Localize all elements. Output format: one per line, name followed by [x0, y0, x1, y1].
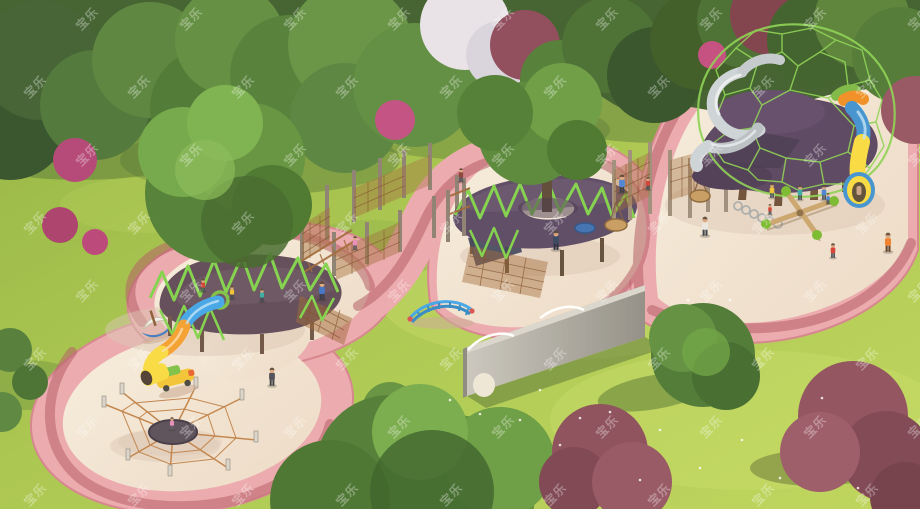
playground-aerial-render: 宝乐宝乐宝乐宝乐宝乐宝乐宝乐宝乐宝乐宝乐宝乐宝乐宝乐宝乐宝乐宝乐宝乐宝乐宝乐宝乐…	[0, 0, 920, 509]
light-overlay	[0, 0, 920, 509]
